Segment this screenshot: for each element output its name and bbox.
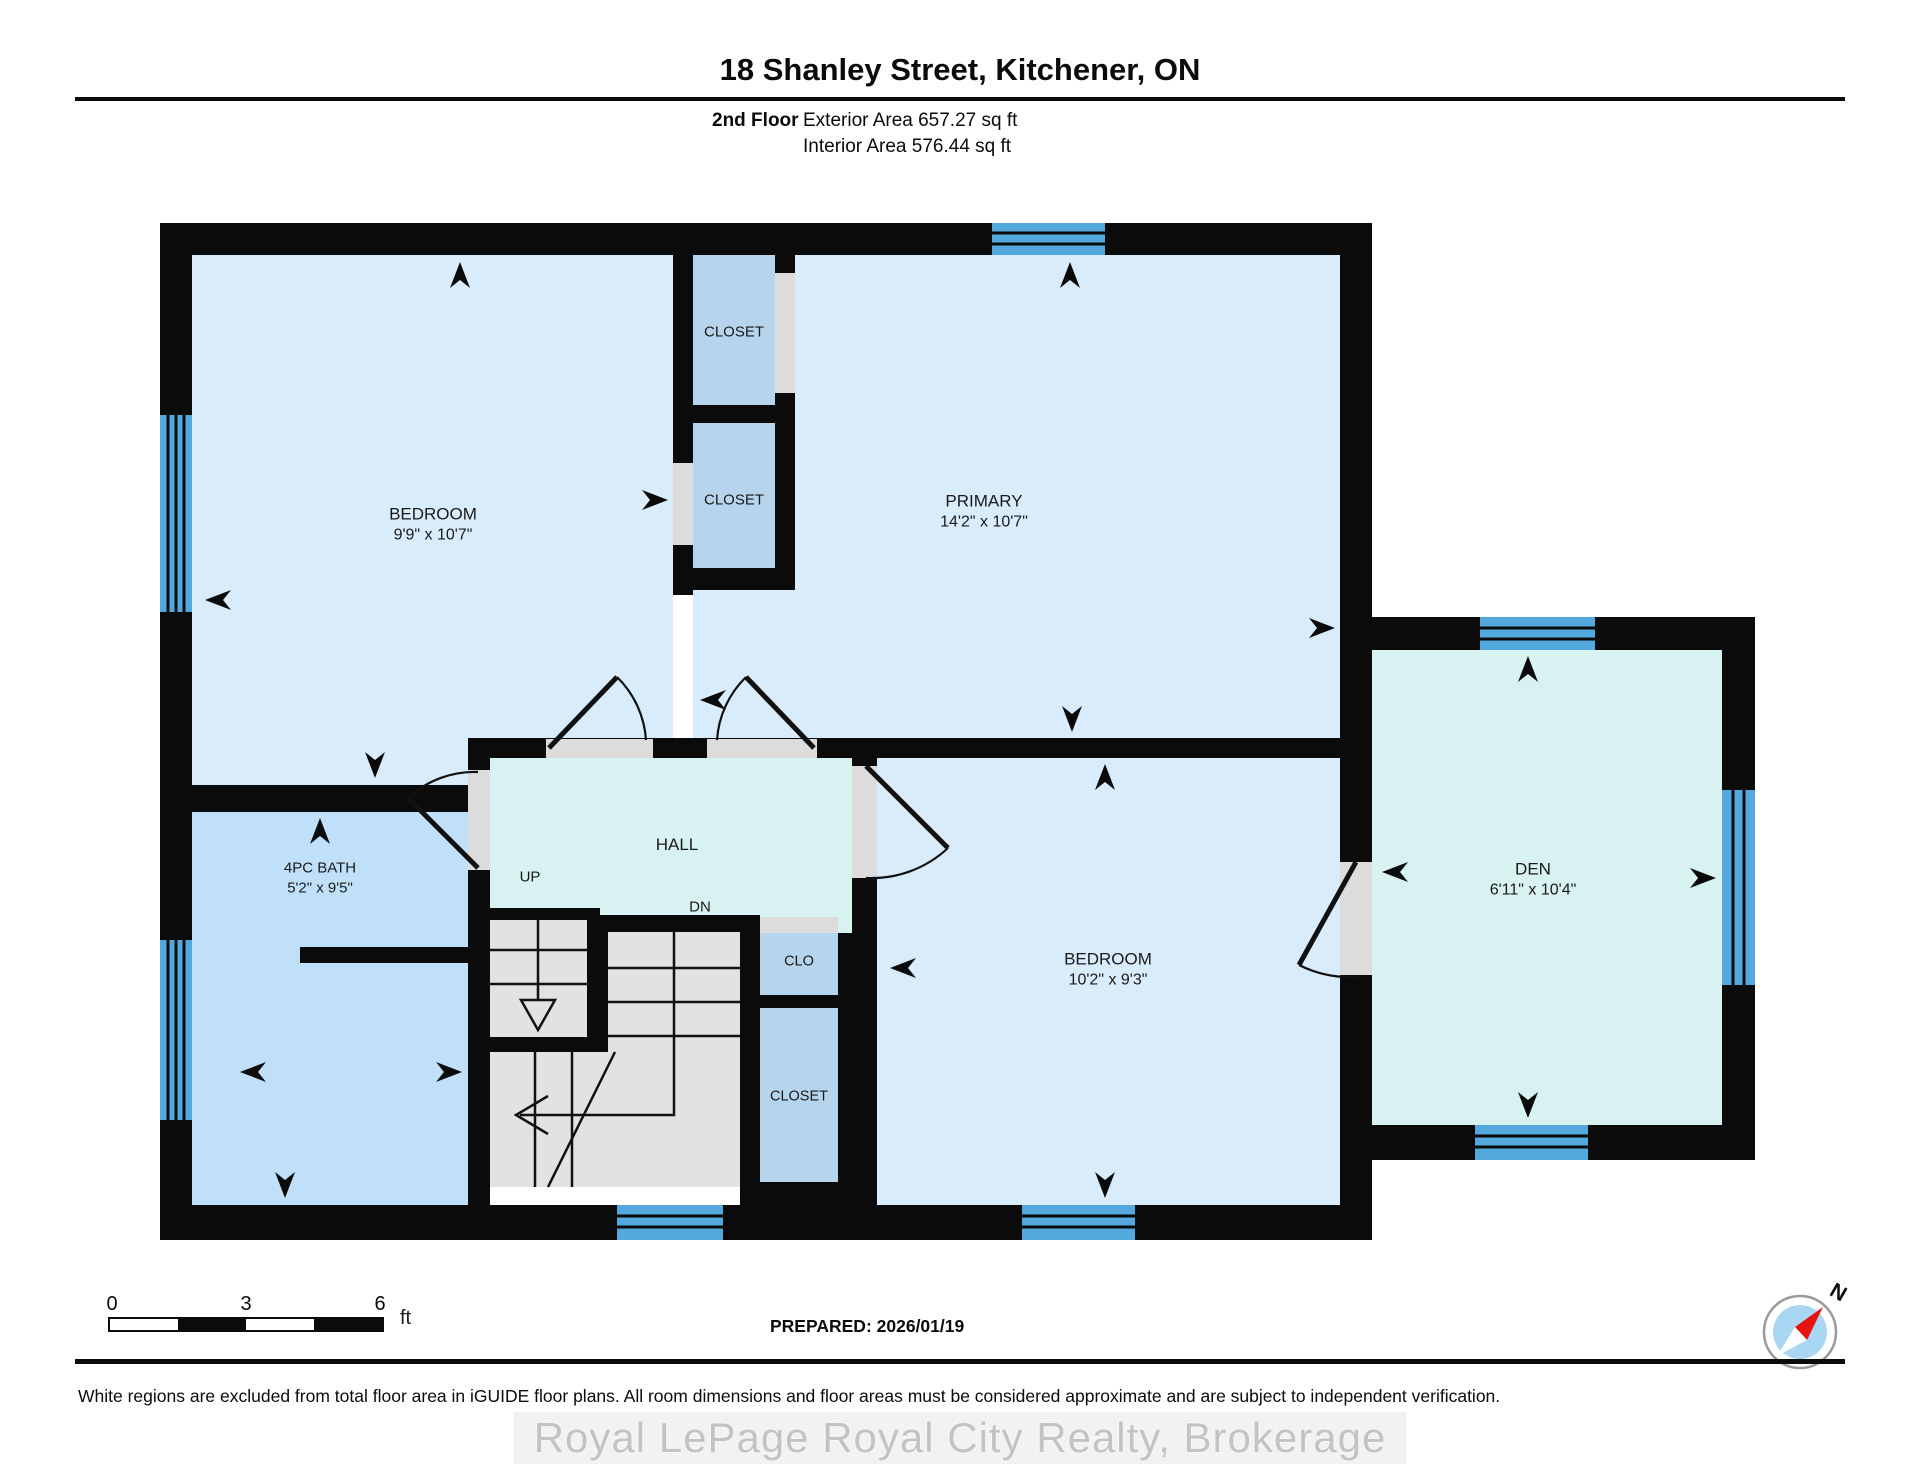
- wall-outer-top: [160, 223, 1372, 255]
- door-clo: [760, 917, 838, 933]
- bedroom1-dims: 9'9" x 10'7": [389, 526, 477, 547]
- door-closet-top: [775, 273, 795, 393]
- footer-divider: [75, 1359, 1845, 1364]
- wall-stair-right: [740, 915, 760, 1205]
- brokerage-watermark: Royal LePage Royal City Realty, Brokerag…: [514, 1412, 1407, 1464]
- wall-closet-bottom2: [760, 1182, 838, 1205]
- scale-segment: [110, 1319, 178, 1330]
- wall-clo-divider: [760, 995, 838, 1008]
- bath-name: 4PC BATH: [284, 859, 356, 879]
- scale-bar: 0 3 6 ft: [108, 1293, 384, 1332]
- closet-bottom-label: CLOSET: [770, 1088, 828, 1107]
- primary-dims: 14'2" x 10'7": [940, 513, 1028, 534]
- primary-label: PRIMARY 14'2" x 10'7": [940, 491, 1028, 534]
- wall-stair-mid: [490, 1037, 600, 1052]
- window-stairs-bottom: [617, 1205, 723, 1240]
- scale-segment: [314, 1319, 382, 1330]
- clo-label: CLO: [784, 953, 814, 972]
- bedroom1-name: BEDROOM: [389, 504, 477, 526]
- window-den-right: [1722, 790, 1755, 985]
- den-name: DEN: [1490, 859, 1577, 881]
- window-bedroom1-left: [160, 415, 192, 612]
- window-den-top: [1480, 617, 1595, 650]
- scale-tick-0: 0: [106, 1293, 117, 1316]
- window-bath-left: [160, 940, 192, 1120]
- bath-dims: 5'2" x 9'5": [284, 878, 356, 898]
- stairs-up-label: UP: [520, 867, 541, 887]
- wall-stair-top-right: [600, 915, 748, 932]
- scale-segment: [178, 1319, 246, 1330]
- scale-tick-3: 3: [240, 1293, 251, 1316]
- stairs-dn-label: DN: [689, 897, 711, 917]
- compass-icon: [1764, 1296, 1836, 1368]
- bedroom1-label: BEDROOM 9'9" x 10'7": [389, 504, 477, 547]
- wall-bedroom1-bath: [160, 785, 490, 812]
- window-primary-top: [992, 223, 1105, 255]
- prepared-date: PREPARED: 2026/01/19: [770, 1316, 964, 1337]
- scale-ticks: 0 3 6: [108, 1293, 384, 1317]
- window-den-bottom: [1475, 1125, 1588, 1160]
- scale-tick-6: 6: [374, 1293, 385, 1316]
- scale-unit: ft: [400, 1307, 411, 1330]
- bedroom2-name: BEDROOM: [1064, 949, 1152, 971]
- hall-label: HALL: [656, 834, 699, 856]
- window-bedroom2-bottom: [1022, 1205, 1135, 1240]
- wall-stair-divider: [587, 918, 608, 1052]
- floor-plan: [0, 0, 1920, 1484]
- wall-bath-stub: [300, 947, 468, 963]
- wall-outer-right: [1340, 223, 1372, 1240]
- wall-stair-top-left: [490, 908, 600, 920]
- wall-outer-bottom: [160, 1205, 1372, 1240]
- scale-segment: [246, 1319, 314, 1330]
- closet-mid-label: CLOSET: [704, 490, 764, 510]
- den-dims: 6'11" x 10'4": [1490, 881, 1577, 902]
- bath-label: 4PC BATH 5'2" x 9'5": [284, 859, 356, 898]
- floorplan-page: { "header": { "title": "18 Shanley Stree…: [0, 0, 1920, 1484]
- door-closet-mid: [673, 463, 693, 545]
- bedroom2-label: BEDROOM 10'2" x 9'3": [1064, 949, 1152, 992]
- primary-name: PRIMARY: [940, 491, 1028, 513]
- scale-segments: [108, 1317, 384, 1332]
- den-label: DEN 6'11" x 10'4": [1490, 859, 1577, 902]
- disclaimer-text: White regions are excluded from total fl…: [78, 1386, 1500, 1407]
- wall-closets2-right: [838, 933, 877, 1205]
- closet-top-label: CLOSET: [704, 322, 764, 342]
- room-fills: [192, 255, 1722, 1205]
- staircase: [490, 918, 740, 1187]
- bedroom2-dims: 10'2" x 9'3": [1064, 971, 1152, 992]
